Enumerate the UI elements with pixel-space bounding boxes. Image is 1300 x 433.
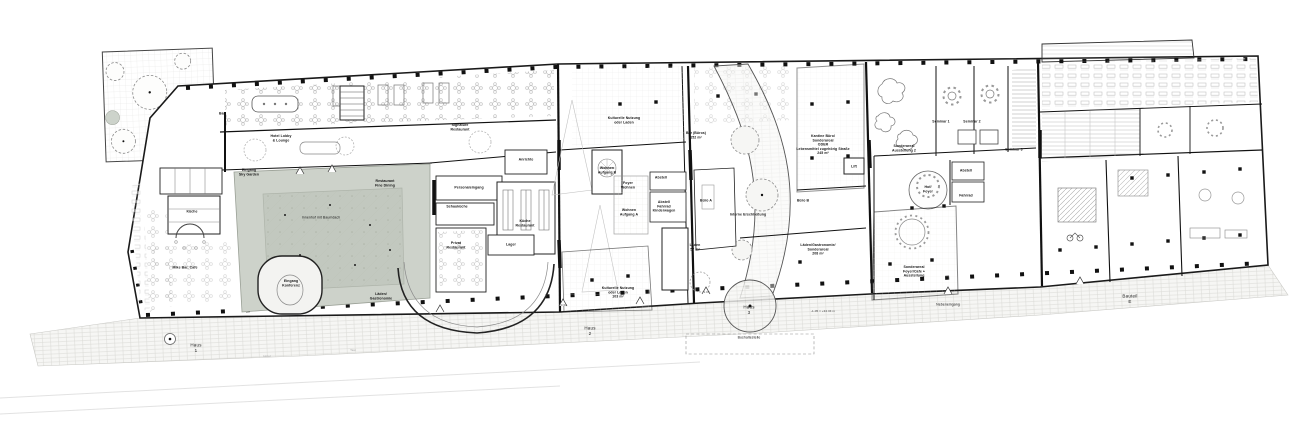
buero-a-room: [694, 168, 736, 250]
anrichte-room: [505, 150, 547, 174]
floor-plan-drawing: [0, 0, 1300, 433]
bus-stop-zone: [686, 334, 814, 354]
kitchen-room: [168, 196, 220, 234]
hof-foyer-circle: [909, 171, 947, 209]
storage-room: [488, 235, 534, 255]
desk-rows: [1042, 58, 1258, 110]
tree-icon: [165, 334, 176, 345]
sonderareal-room: [872, 206, 958, 300]
lift-shaft: [844, 158, 864, 174]
auditorium-rows: [1012, 68, 1036, 150]
table-icon: [438, 230, 484, 290]
table-icon: [152, 240, 236, 308]
street-lines: [0, 362, 700, 414]
floor-plan-canvas: Bar Hotel Lobby & Lounge Signature Resta…: [0, 0, 1300, 433]
conference-entry-room: [258, 256, 322, 314]
stair-icon: [340, 86, 364, 120]
